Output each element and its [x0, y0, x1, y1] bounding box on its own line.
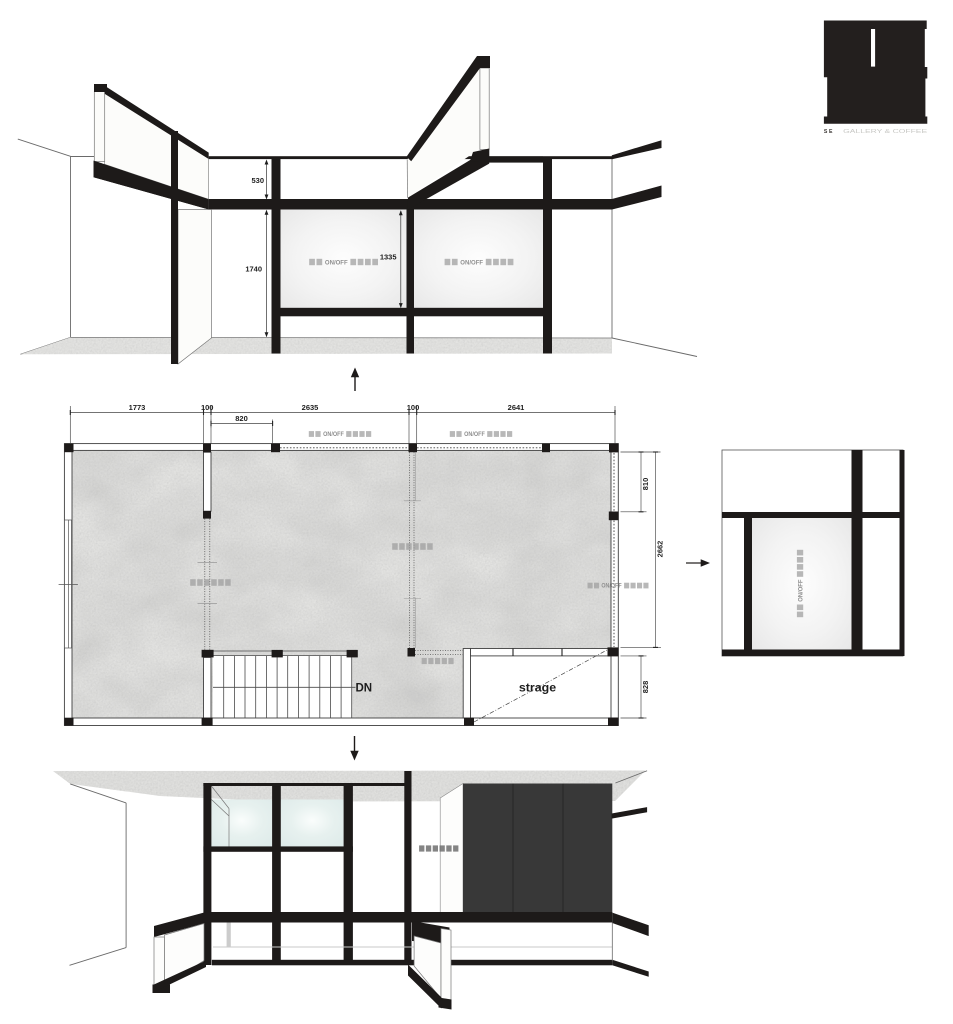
- svg-text:SE: SE: [824, 129, 834, 135]
- svg-text:100: 100: [407, 403, 420, 412]
- svg-text:1335: 1335: [380, 253, 397, 262]
- svg-text:1773: 1773: [129, 403, 146, 412]
- svg-text:810: 810: [641, 478, 650, 491]
- svg-text:530: 530: [251, 176, 264, 185]
- svg-text:ON/OFF: ON/OFF: [325, 259, 348, 266]
- svg-text:ON/OFF: ON/OFF: [797, 580, 804, 602]
- svg-text:100: 100: [201, 403, 214, 412]
- svg-text:ON/OFF: ON/OFF: [460, 259, 483, 266]
- svg-text:820: 820: [235, 414, 248, 423]
- svg-text:strage: strage: [519, 681, 556, 695]
- svg-text:2641: 2641: [508, 403, 525, 412]
- svg-text:ON/OFF: ON/OFF: [601, 584, 621, 590]
- svg-text:GALLERY & COFFEE: GALLERY & COFFEE: [843, 129, 928, 135]
- svg-text:828: 828: [641, 681, 650, 694]
- svg-text:2635: 2635: [302, 403, 319, 412]
- svg-text:2662: 2662: [656, 541, 665, 558]
- svg-text:ON/OFF: ON/OFF: [464, 431, 485, 438]
- svg-text:DN: DN: [356, 683, 373, 695]
- svg-text:1740: 1740: [245, 265, 262, 274]
- svg-text:ON/OFF: ON/OFF: [323, 431, 344, 438]
